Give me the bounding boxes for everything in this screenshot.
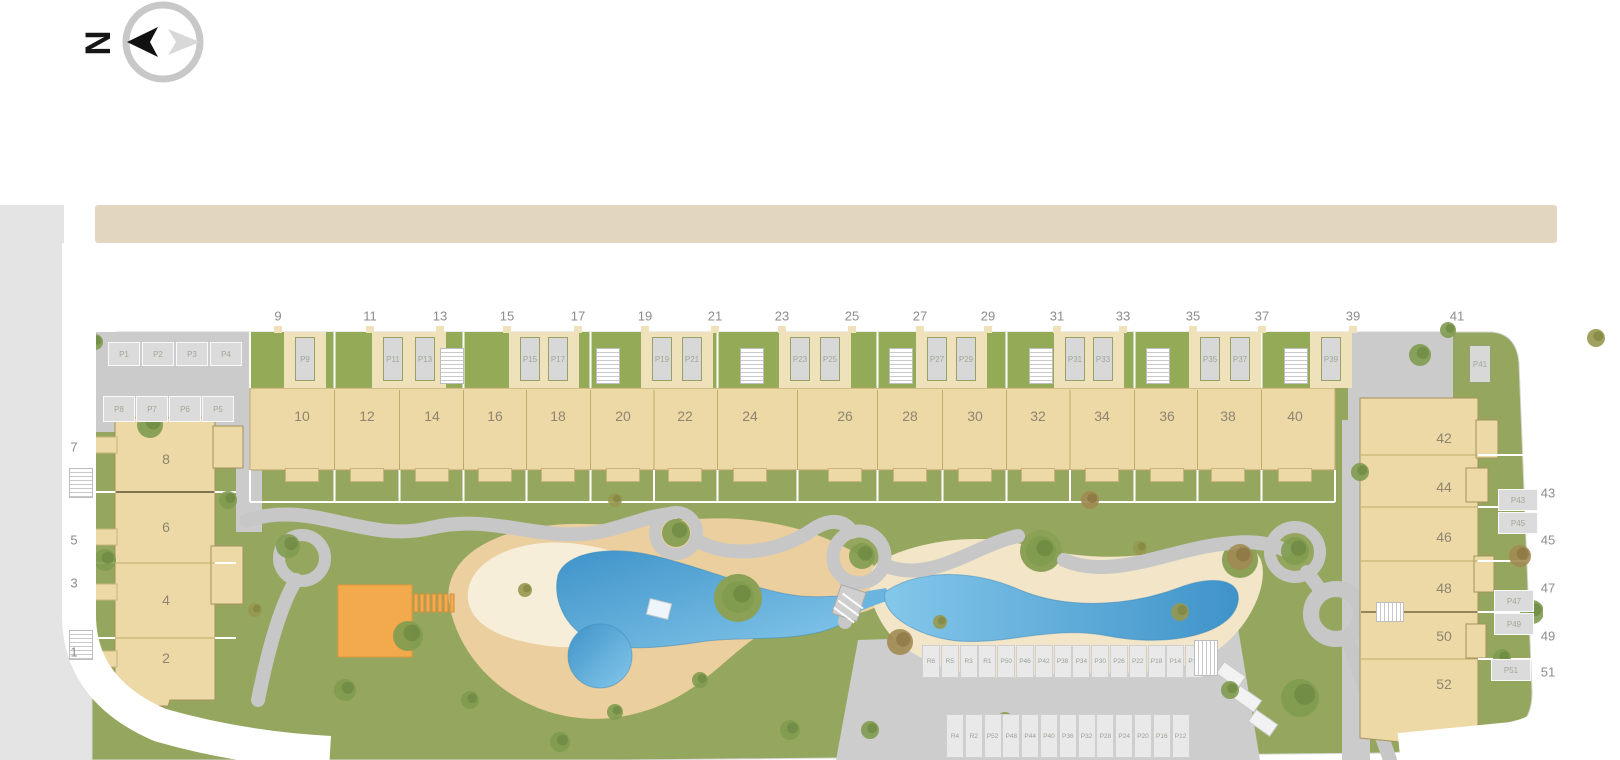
parking-space: P37 (1230, 337, 1250, 381)
street-number: 3 (70, 576, 77, 591)
parking-space: P39 (1321, 337, 1341, 381)
parking-space: P34 (1072, 645, 1090, 678)
parking-space: P46 (1016, 645, 1034, 678)
parking-space: P20 (1134, 714, 1152, 758)
parking-space: P29 (956, 337, 976, 381)
parking-space: P6 (169, 396, 201, 422)
stairs (740, 348, 764, 384)
stairs (596, 348, 620, 384)
parking-space: P49 (1494, 613, 1534, 635)
building-right (1360, 398, 1498, 742)
street-number: 31 (1050, 309, 1064, 324)
parking-space: P22 (1129, 645, 1147, 678)
terrace (606, 468, 640, 482)
parking-space: P23 (790, 337, 810, 381)
unit-number: 34 (1094, 408, 1110, 424)
terrace (1150, 468, 1184, 482)
stairs (440, 348, 464, 384)
stairs (69, 468, 93, 498)
parking-space: P15 (520, 337, 540, 381)
parking-space: P51 (1491, 659, 1531, 681)
parking-space: P13 (415, 337, 435, 381)
parking-space: P16 (1153, 714, 1171, 758)
terrace (541, 468, 575, 482)
unit-number: 12 (359, 408, 375, 424)
parking-space: P11 (383, 337, 403, 381)
unit-number: 48 (1436, 580, 1452, 596)
parking-space: P30 (1091, 645, 1109, 678)
unit-number: 52 (1436, 676, 1452, 692)
terrace (893, 468, 927, 482)
street-number: 19 (638, 309, 652, 324)
street-number: 13 (433, 309, 447, 324)
parking-space: R1 (978, 645, 996, 678)
unit-number: 44 (1436, 479, 1452, 495)
parking-space: P25 (820, 337, 840, 381)
stairs (1284, 348, 1308, 384)
unit-number: 36 (1159, 408, 1175, 424)
unit-number: 50 (1436, 628, 1452, 644)
parking-space: P45 (1498, 512, 1538, 534)
parking-space: P4 (210, 342, 242, 366)
parking-space: P3 (176, 342, 208, 366)
terrace (350, 468, 384, 482)
unit-number: 20 (615, 408, 631, 424)
parking-space: P42 (1035, 645, 1053, 678)
parking-space: P21 (682, 337, 702, 381)
unit-number: 42 (1436, 430, 1452, 446)
street-number: 43 (1541, 486, 1555, 501)
parking-space: P32 (1078, 714, 1096, 758)
terrace (478, 468, 512, 482)
parking-space: R5 (941, 645, 959, 678)
unit-number: 28 (902, 408, 918, 424)
unit-number: 6 (162, 519, 170, 535)
street-number: 49 (1541, 629, 1555, 644)
street-number: 5 (70, 533, 77, 548)
stairs (889, 348, 913, 384)
unit-number: 38 (1220, 408, 1236, 424)
unit-number: 16 (487, 408, 503, 424)
street-number: 11 (363, 309, 377, 324)
parking-space: P50 (997, 645, 1015, 678)
parking-space: P41 (1469, 345, 1491, 383)
street-number: 29 (981, 309, 995, 324)
parking-space: P47 (1494, 590, 1534, 612)
parking-space: R6 (922, 645, 940, 678)
terrace (1211, 468, 1245, 482)
parking-space: P18 (1148, 645, 1166, 678)
street-number: 47 (1541, 581, 1555, 596)
parking-space: P24 (1115, 714, 1133, 758)
parking-space: P33 (1093, 337, 1113, 381)
unit-number: 2 (162, 650, 170, 666)
street-number: 39 (1346, 309, 1360, 324)
parking-space: P5 (202, 396, 234, 422)
parking-space: P8 (103, 396, 135, 422)
parking-space: P44 (1021, 714, 1039, 758)
parking-space: P7 (136, 396, 168, 422)
unit-number: 46 (1436, 529, 1452, 545)
terrace (958, 468, 992, 482)
parking-space: P1 (108, 342, 140, 366)
stairs (1146, 348, 1170, 384)
terrace (1021, 468, 1055, 482)
parking-space: P28 (1096, 714, 1114, 758)
terrace (415, 468, 449, 482)
street-number: 41 (1450, 309, 1464, 324)
unit-number: 32 (1030, 408, 1046, 424)
street-number: 15 (500, 309, 514, 324)
street-number: 45 (1541, 533, 1555, 548)
parking-space: P14 (1166, 645, 1184, 678)
compass-north-letter: N (77, 30, 117, 55)
parking-space: P35 (1200, 337, 1220, 381)
parking-space: P43 (1498, 489, 1538, 511)
parking-space: P38 (1054, 645, 1072, 678)
parking-space: P40 (1040, 714, 1058, 758)
parking-space: R3 (960, 645, 978, 678)
sidewalk-strip (95, 205, 1557, 243)
parking-space: P9 (295, 337, 315, 381)
street-number: 7 (70, 440, 77, 455)
unit-number: 4 (162, 592, 170, 608)
street-number: 33 (1116, 309, 1130, 324)
compass-icon (126, 5, 200, 79)
site-plan: N 91113151719212325272931333537394175314… (0, 0, 1620, 760)
unit-number: 40 (1287, 408, 1303, 424)
unit-number: 24 (742, 408, 758, 424)
street-number: 37 (1255, 309, 1269, 324)
terrace (1278, 468, 1312, 482)
stairs (1194, 640, 1218, 676)
street-number: 1 (70, 645, 77, 660)
parking-space: P26 (1110, 645, 1128, 678)
street-number: 51 (1541, 665, 1555, 680)
terrace (733, 468, 767, 482)
street-number: 21 (708, 309, 722, 324)
street-number: 17 (571, 309, 585, 324)
terrace (828, 468, 862, 482)
unit-number: 22 (677, 408, 693, 424)
parking-space: R2 (965, 714, 983, 758)
unit-number: 30 (967, 408, 983, 424)
unit-number: 18 (550, 408, 566, 424)
parking-space: P36 (1059, 714, 1077, 758)
parking-space: P12 (1172, 714, 1190, 758)
parking-space: P31 (1065, 337, 1085, 381)
parking-space: P19 (652, 337, 672, 381)
street-number: 25 (845, 309, 859, 324)
parking-space: P27 (927, 337, 947, 381)
unit-number: 8 (162, 451, 170, 467)
terrace (668, 468, 702, 482)
terrace (285, 468, 319, 482)
parking-space: P17 (548, 337, 568, 381)
street-number: 23 (775, 309, 789, 324)
parking-space: P48 (1002, 714, 1020, 758)
street-number: 27 (913, 309, 927, 324)
terrace (1085, 468, 1119, 482)
parking-space: R4 (946, 714, 964, 758)
unit-number: 26 (837, 408, 853, 424)
unit-number: 10 (294, 408, 310, 424)
stairs (1029, 348, 1053, 384)
street-number: 35 (1186, 309, 1200, 324)
unit-number: 14 (424, 408, 440, 424)
parking-space: P2 (142, 342, 174, 366)
street-number: 9 (274, 309, 281, 324)
stairs (1376, 602, 1404, 622)
parking-space: P52 (984, 714, 1002, 758)
